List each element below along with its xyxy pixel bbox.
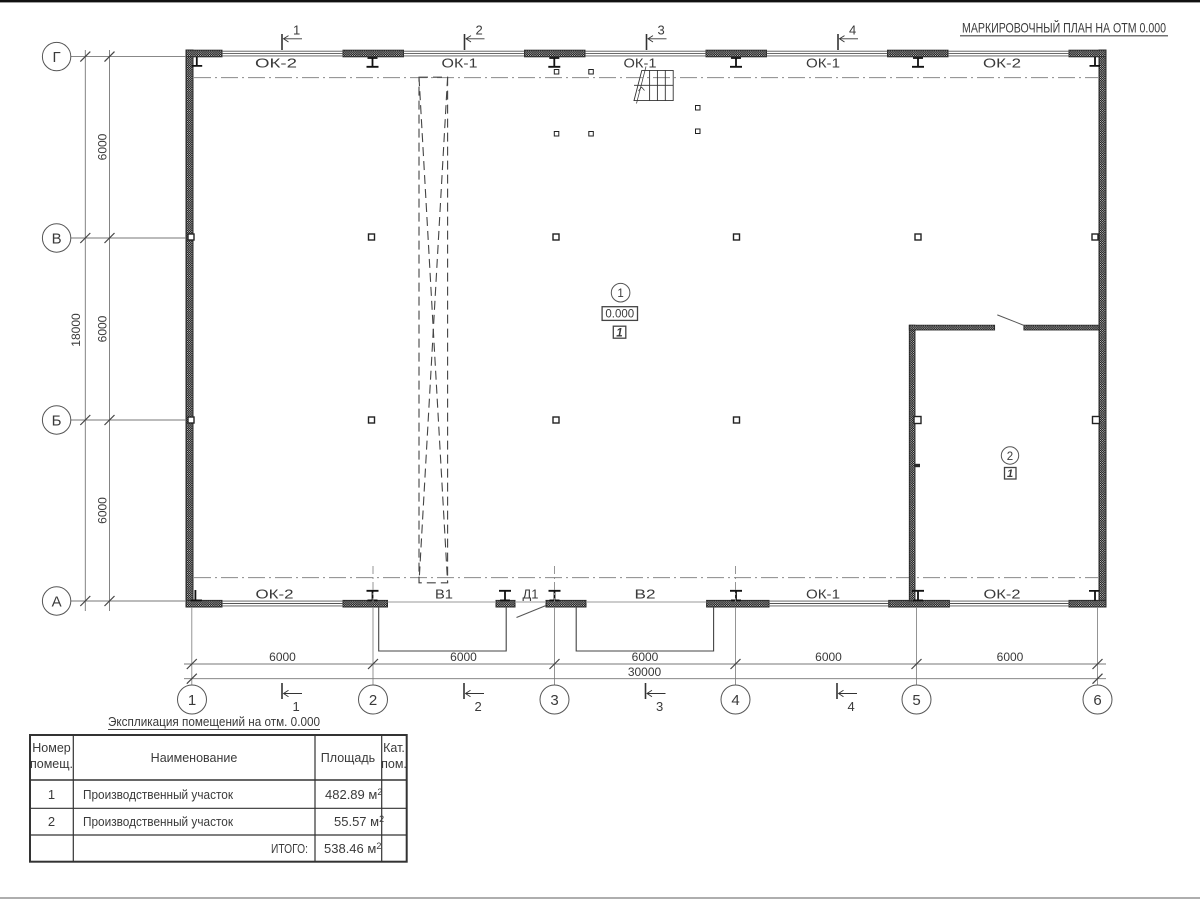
svg-text:ИТОГО:: ИТОГО: (271, 841, 308, 856)
svg-text:1: 1 (188, 692, 196, 709)
svg-text:6000: 6000 (96, 133, 110, 160)
svg-text:пом.: пом. (381, 757, 407, 771)
svg-text:0.000: 0.000 (605, 309, 634, 321)
svg-text:ОК-2: ОК-2 (255, 57, 297, 71)
svg-text:Д1: Д1 (523, 588, 539, 602)
svg-text:18000: 18000 (69, 313, 83, 347)
svg-text:ОК-1: ОК-1 (806, 57, 840, 71)
svg-text:Наименование: Наименование (151, 751, 238, 765)
svg-text:6000: 6000 (632, 650, 659, 664)
svg-text:1: 1 (293, 699, 300, 714)
svg-text:Площадь: Площадь (321, 751, 375, 765)
svg-text:В2: В2 (635, 588, 656, 602)
svg-text:1: 1 (293, 23, 300, 38)
svg-text:30000: 30000 (628, 665, 662, 679)
svg-text:помещ.: помещ. (30, 757, 73, 771)
svg-text:Номер: Номер (32, 741, 71, 755)
svg-text:Кат.: Кат. (383, 741, 405, 755)
svg-text:Экспликация помещений на отм.: Экспликация помещений на отм. 0.000 (108, 714, 320, 729)
svg-text:МАРКИРОВОЧНЫЙ ПЛАН НА ОТМ 0.00: МАРКИРОВОЧНЫЙ ПЛАН НА ОТМ 0.000 (962, 19, 1166, 36)
svg-text:1: 1 (616, 327, 622, 339)
svg-text:4: 4 (731, 692, 739, 709)
svg-text:6000: 6000 (96, 315, 110, 342)
svg-text:ОК-1: ОК-1 (624, 57, 657, 71)
svg-text:538.46 м2: 538.46 м2 (324, 841, 381, 856)
svg-text:Г: Г (53, 49, 61, 66)
svg-text:В1: В1 (435, 588, 453, 602)
svg-text:2: 2 (476, 23, 483, 38)
svg-text:2: 2 (1007, 451, 1013, 463)
svg-text:3: 3 (550, 692, 558, 709)
svg-text:1: 1 (48, 787, 55, 802)
svg-text:482.89 м2: 482.89 м2 (325, 787, 382, 802)
svg-text:1: 1 (1007, 468, 1013, 480)
svg-text:Б: Б (52, 412, 62, 429)
svg-text:А: А (52, 593, 62, 610)
svg-text:55.57 м2: 55.57 м2 (334, 814, 384, 829)
svg-text:6000: 6000 (450, 650, 477, 664)
svg-text:4: 4 (849, 23, 856, 38)
svg-text:ОК-2: ОК-2 (983, 57, 1021, 71)
svg-text:ОК-2: ОК-2 (256, 588, 294, 602)
svg-text:2: 2 (369, 692, 377, 709)
svg-text:6000: 6000 (269, 650, 296, 664)
svg-text:ОК-1: ОК-1 (806, 588, 840, 602)
svg-text:ОК-1: ОК-1 (442, 57, 478, 71)
svg-text:ОК-2: ОК-2 (984, 588, 1021, 602)
svg-text:2: 2 (475, 699, 482, 714)
svg-text:3: 3 (658, 23, 665, 38)
svg-text:Производственный участок: Производственный участок (83, 787, 233, 802)
svg-text:В: В (52, 230, 62, 247)
svg-text:6: 6 (1093, 692, 1101, 709)
svg-text:4: 4 (848, 699, 855, 714)
svg-text:6000: 6000 (815, 650, 842, 664)
svg-text:Производственный участок: Производственный участок (83, 814, 233, 829)
svg-text:6000: 6000 (96, 497, 110, 524)
svg-text:6000: 6000 (997, 650, 1024, 664)
svg-text:3: 3 (656, 699, 663, 714)
svg-text:2: 2 (48, 814, 55, 829)
svg-text:5: 5 (912, 692, 920, 709)
svg-text:1: 1 (617, 288, 623, 300)
